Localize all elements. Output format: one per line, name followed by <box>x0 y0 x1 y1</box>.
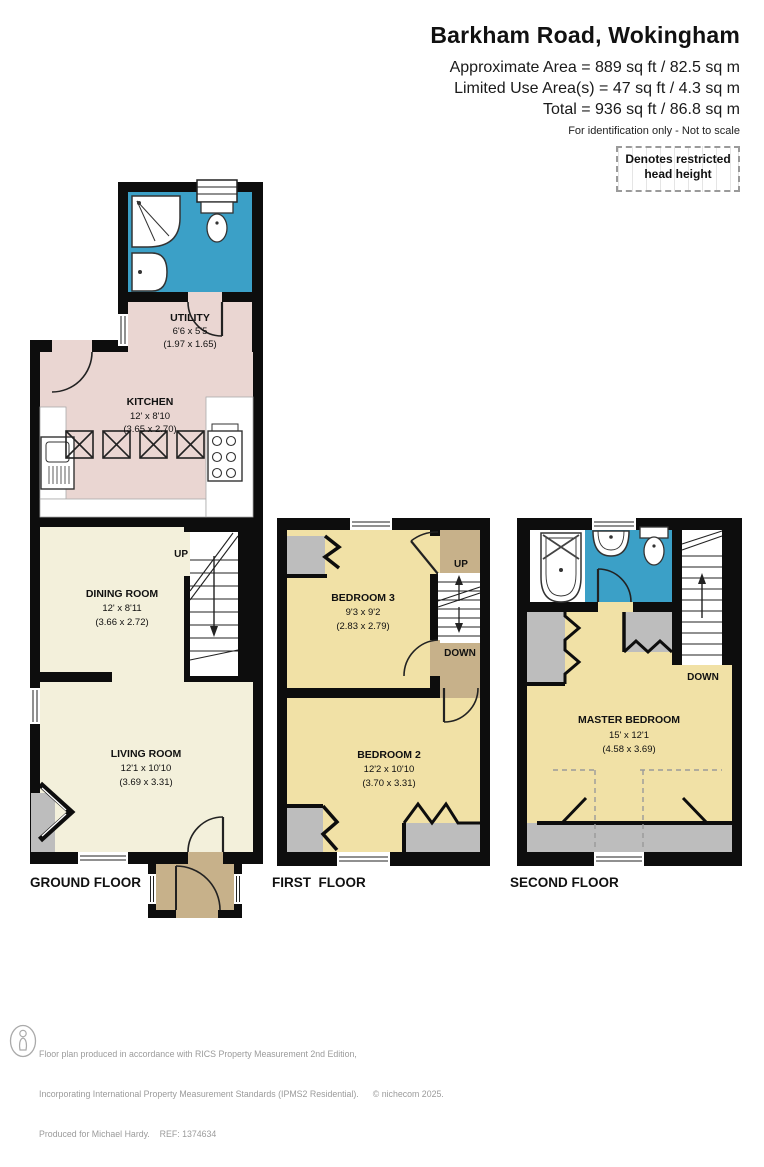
ground-floor-plan: UTILITY 6'6 x 5'5 (1.97 x 1.65) KITCHEN … <box>28 178 268 926</box>
nichecom-logo <box>7 1022 39 1060</box>
hob-icon <box>208 424 242 481</box>
room-metric-bedroom2: (3.70 x 3.31) <box>362 778 415 789</box>
first-floor-plan: BEDROOM 3 9'3 x 9'2 (2.83 x 2.79) BEDROO… <box>275 516 495 870</box>
room-label-master: MASTER BEDROOM <box>578 714 680 726</box>
ground-floor-label: GROUND FLOOR <box>30 875 141 890</box>
bedroom3-window <box>350 518 392 530</box>
footer-line1: Floor plan produced in accordance with R… <box>39 1048 444 1061</box>
room-label-bedroom3: BEDROOM 3 <box>331 592 395 604</box>
second-floor-plan: MASTER BEDROOM 15' x 12'1 (4.58 x 3.69) … <box>515 516 760 870</box>
approximate-area: Approximate Area = 889 sq ft / 82.5 sq m <box>430 57 740 78</box>
stairs-up-label: UP <box>174 549 188 560</box>
first-floor-label: FIRST FLOOR <box>272 875 366 890</box>
shower-icon <box>132 196 180 247</box>
master-alcove-right <box>624 612 672 652</box>
living-front-window <box>78 852 128 864</box>
room-label-utility: UTILITY <box>170 312 210 324</box>
room-label-living: LIVING ROOM <box>111 748 182 760</box>
kitchen-sink-icon <box>41 437 74 489</box>
master-window <box>594 852 644 866</box>
room-dims-dining: 12' x 8'11 <box>102 603 141 614</box>
room-label-kitchen: KITCHEN <box>127 396 174 408</box>
second-floor-label: SECOND FLOOR <box>510 875 619 890</box>
room-dims-kitchen: 12' x 8'10 <box>130 411 170 422</box>
living-side-window <box>30 688 40 724</box>
footer-disclaimer: Floor plan produced in accordance with R… <box>39 1022 444 1167</box>
disclaimer: For identification only - Not to scale <box>430 125 740 137</box>
bedroom2-window <box>337 852 390 866</box>
header: Barkham Road, Wokingham Approximate Area… <box>430 22 740 137</box>
room-metric-kitchen: (3.65 x 2.70) <box>123 424 176 435</box>
limited-use-area: Limited Use Area(s) = 47 sq ft / 4.3 sq … <box>430 78 740 99</box>
room-dims-master: 15' x 12'1 <box>609 730 649 741</box>
room-label-bedroom2: BEDROOM 2 <box>357 749 421 761</box>
room-dims-bedroom3: 9'3 x 9'2 <box>346 607 381 618</box>
stairs-down-label: DOWN <box>444 648 476 659</box>
room-metric-utility: (1.97 x 1.65) <box>163 339 216 350</box>
room-dims-utility: 6'6 x 5'5 <box>173 326 208 337</box>
total-area: Total = 936 sq ft / 86.8 sq m <box>430 99 740 120</box>
bath-icon <box>541 533 581 602</box>
room-label-dining: DINING ROOM <box>86 588 159 600</box>
utility-window <box>118 314 128 346</box>
stairs-down-label: DOWN <box>687 672 719 683</box>
page-title: Barkham Road, Wokingham <box>430 22 740 49</box>
room-metric-master: (4.58 x 3.69) <box>602 744 655 755</box>
room-dims-bedroom2: 12'2 x 10'10 <box>364 764 415 775</box>
wc-window <box>197 180 237 202</box>
room-dims-living: 12'1 x 10'10 <box>121 763 172 774</box>
restricted-head-height-legend: Denotes restricted head height <box>616 146 740 192</box>
room-metric-bedroom3: (2.83 x 2.79) <box>336 621 389 632</box>
basin-icon <box>132 253 167 291</box>
footer-line3: Produced for Michael Hardy. REF: 1374634 <box>39 1128 444 1141</box>
stairs-up-label: UP <box>454 559 468 570</box>
copyright: © nichecom 2025. <box>373 1089 444 1099</box>
footer-line2: Incorporating International Property Mea… <box>39 1088 444 1101</box>
room-metric-dining: (3.66 x 2.72) <box>95 617 148 628</box>
room-metric-living: (3.69 x 3.31) <box>119 777 172 788</box>
floorplan-page: Barkham Road, Wokingham Approximate Area… <box>0 0 764 1080</box>
bathroom-window <box>592 518 636 530</box>
